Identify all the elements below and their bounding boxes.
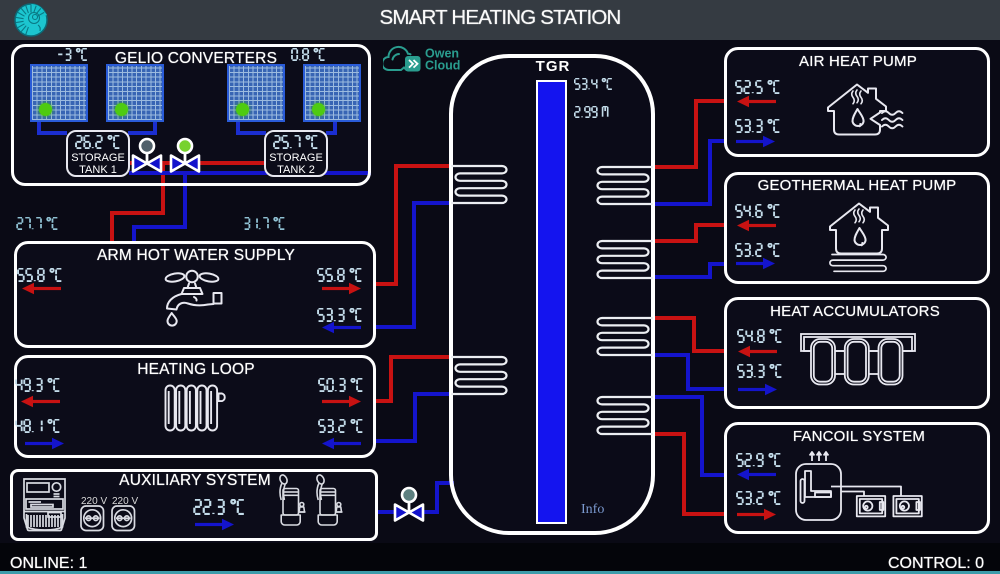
- svg-text:Cloud: Cloud: [425, 59, 460, 73]
